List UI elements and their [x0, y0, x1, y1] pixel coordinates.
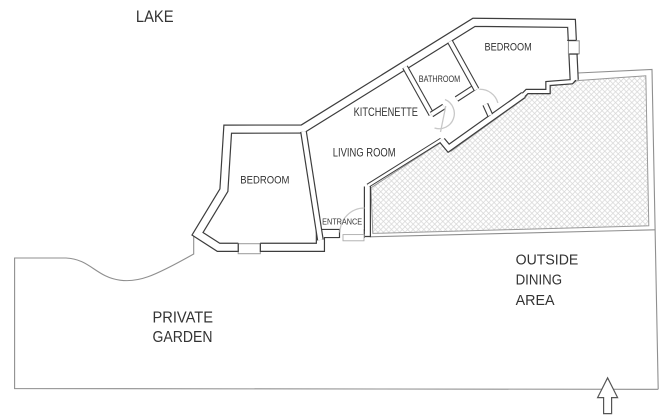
svg-text:AREA: AREA [516, 293, 555, 309]
svg-text:KITCHENETTE: KITCHENETTE [354, 105, 418, 119]
svg-text:BEDROOM: BEDROOM [485, 42, 532, 54]
svg-text:GARDEN: GARDEN [153, 329, 213, 346]
svg-text:LIVING ROOM: LIVING ROOM [333, 148, 396, 160]
svg-text:BEDROOM: BEDROOM [240, 175, 289, 187]
svg-text:PRIVATE: PRIVATE [153, 310, 214, 327]
svg-text:OUTSIDE: OUTSIDE [516, 253, 579, 269]
svg-text:LAKE: LAKE [136, 8, 174, 26]
svg-text:ENTRANCE: ENTRANCE [322, 217, 362, 226]
svg-text:BATHROOM: BATHROOM [419, 74, 460, 84]
svg-text:DINING: DINING [516, 273, 563, 289]
